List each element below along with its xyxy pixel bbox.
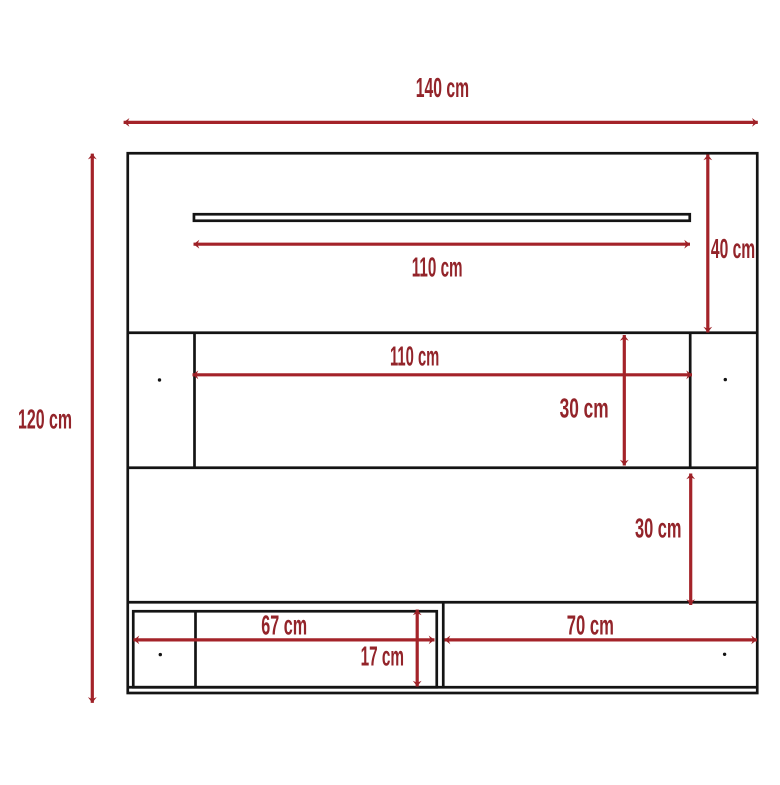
svg-text:120 cm: 120 cm [18,404,72,435]
svg-text:110 cm: 110 cm [412,252,463,283]
svg-text:30 cm: 30 cm [560,393,609,424]
svg-text:40 cm: 40 cm [711,233,755,264]
svg-text:17 cm: 17 cm [361,641,404,672]
svg-text:70 cm: 70 cm [567,610,614,641]
svg-text:30 cm: 30 cm [635,513,682,544]
svg-text:67 cm: 67 cm [261,610,307,641]
svg-text:110 cm: 110 cm [390,341,439,372]
svg-text:140 cm: 140 cm [416,72,469,103]
